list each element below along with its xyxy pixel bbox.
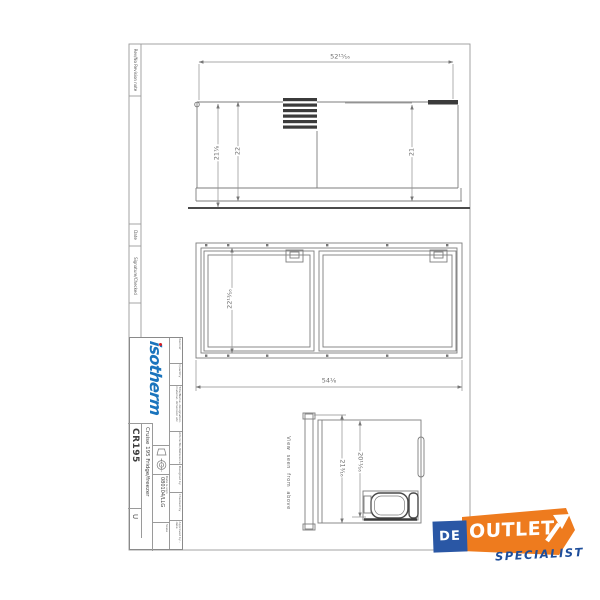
field-label: Checked by (170, 493, 182, 521)
isotherm-logo: isotherm (131, 341, 165, 423)
revision-date-label: Date (133, 230, 137, 240)
field-label: Article No./Reference (170, 432, 182, 466)
drawing-sheet: Rev/No Revision note Date Signature/Chec… (0, 0, 600, 600)
outlet-specialist-logo: DE OUTLET SPECIALIST (425, 500, 600, 585)
field-label: Approved by - date (170, 521, 182, 549)
third-angle-projection-icon (154, 446, 169, 475)
dim-top-width: 52¹⁵⁄₁₆ (329, 54, 351, 61)
dim-front-height: 22¹³⁄₁₆ (227, 288, 234, 310)
date-sign-value: 080104/LLG (159, 475, 165, 522)
front-view-linework (196, 243, 462, 391)
side-view-caption: View seen from above (285, 436, 291, 510)
drawing-revision: U (128, 508, 142, 538)
dim-top-height-mid: 22 (235, 146, 242, 156)
drawing-number: CR195 (128, 423, 142, 508)
outlet-logo-text: OUTLET (469, 514, 555, 546)
outlet-logo-de-box: DE (432, 520, 467, 552)
field-label: Designed by (170, 465, 182, 493)
field-label: Quantity (170, 364, 182, 386)
outlet-logo-specialist-text: SPECIALIST (495, 544, 596, 563)
dim-top-height-left: 21⁷⁄₈ (214, 145, 221, 162)
dim-side-depth-total: 21³⁄₁₆ (339, 458, 346, 477)
projection-symbol-cell (153, 445, 169, 475)
revision-note-label: Rev/No Revision note (133, 49, 137, 92)
dim-top-height-right: 21 (409, 147, 416, 157)
product-title: Cruise 195 Fridge/freezer (142, 423, 153, 551)
isotherm-logo-text: isotherm (146, 340, 164, 416)
top-view-linework (188, 62, 470, 208)
isotherm-logo-dot-icon (159, 343, 162, 346)
scale-cell: Scale (153, 523, 169, 551)
field-label: Itemref (170, 338, 182, 364)
title-block: Itemref Quantity Title/Name, designation… (129, 337, 183, 550)
scale-label: Scale (165, 523, 169, 551)
date-sign-label: Date & sign (165, 475, 169, 522)
date-sign-cell: Date & sign 080104/LLG (153, 475, 169, 523)
dim-front-width: 54¹⁄₈ (321, 378, 338, 385)
dim-side-depth-body: 20¹¹⁄₁₆ (357, 451, 364, 473)
revision-signature-label: Signature/Checked (133, 257, 137, 295)
title-block-field-strip: Itemref Quantity Title/Name, designation… (169, 338, 182, 549)
field-label: Title/Name, designation, material, dimen… (170, 386, 182, 432)
